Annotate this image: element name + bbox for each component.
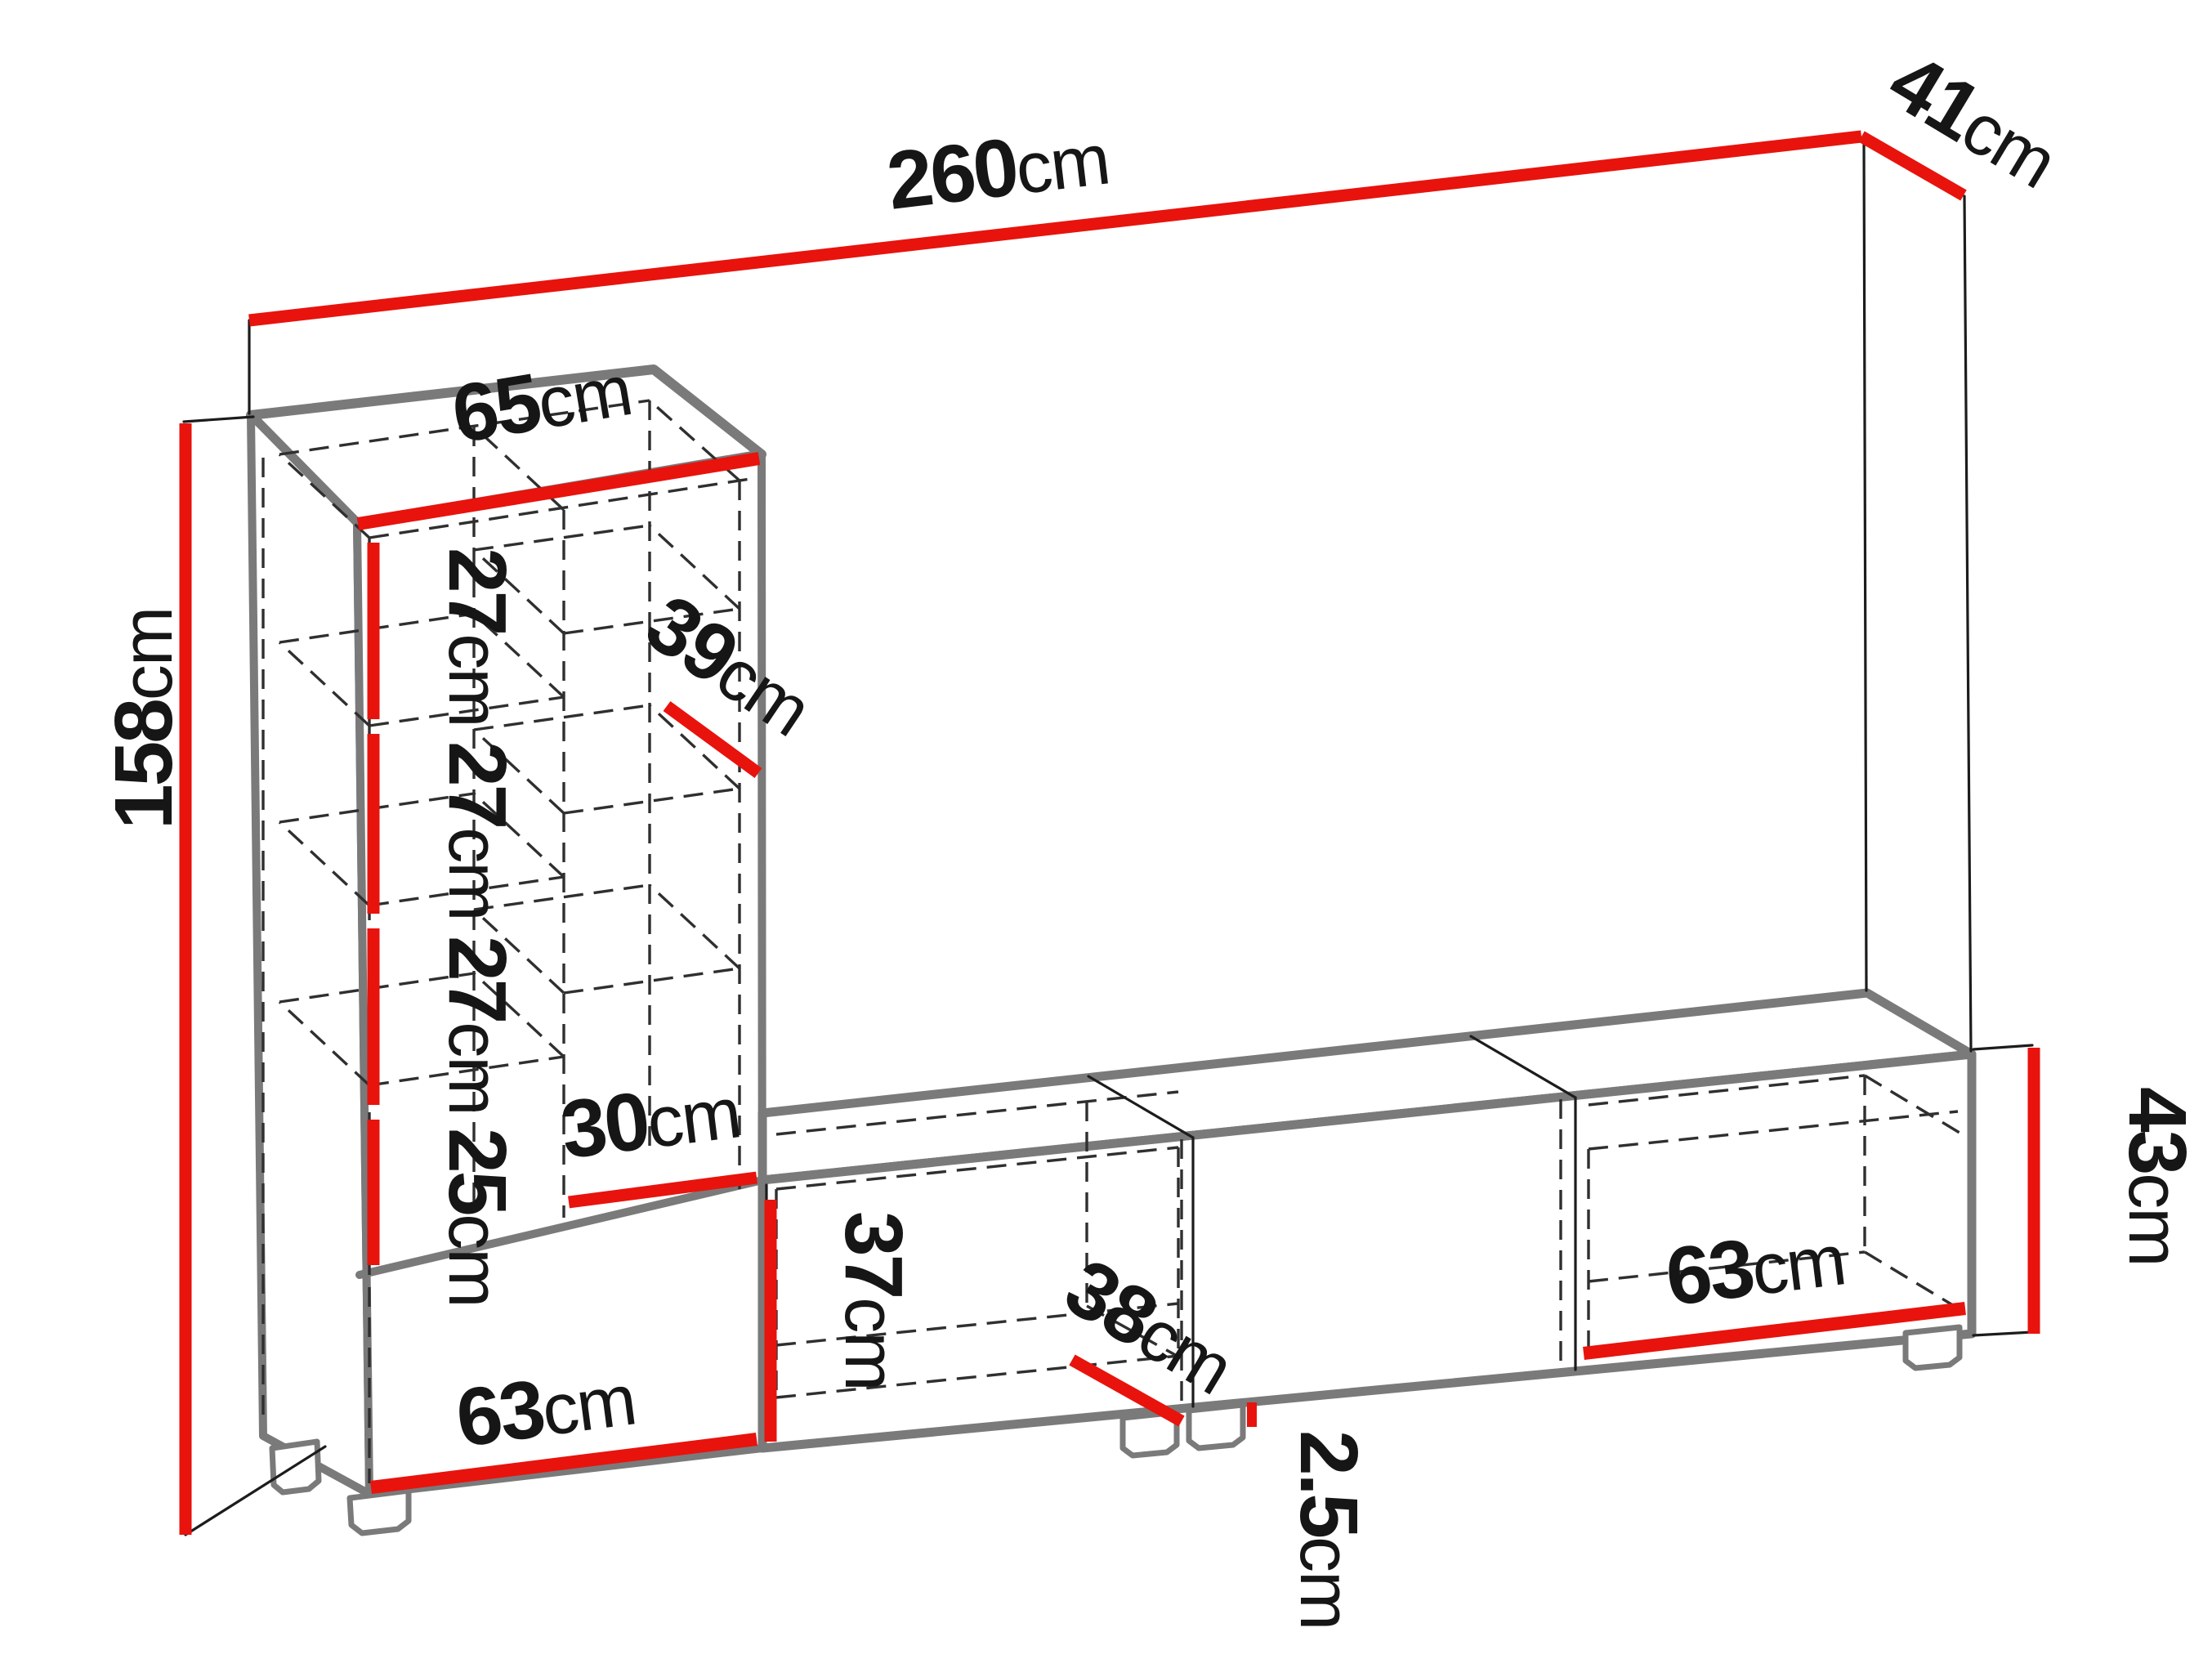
foot-bench-right: [1906, 1327, 1960, 1368]
foot-cabinet-front: [350, 1491, 409, 1533]
label-cabinet-height: 158cm: [98, 608, 190, 829]
label-bench-inner-height: 37cm: [828, 1211, 919, 1390]
label-shelf-gap-1: 27cm: [431, 548, 523, 727]
label-bench-height: 43cm: [2111, 1087, 2203, 1266]
foot-cabinet-side: [272, 1442, 319, 1492]
tall-cabinet: [251, 369, 762, 1494]
label-shelf-gap-2: 27cm: [431, 741, 523, 920]
tall-cabinet-left-side: [251, 415, 369, 1494]
foot-bench-middle: [1189, 1405, 1243, 1448]
label-shelf-gap-4: 25cm: [431, 1128, 523, 1307]
label-plinth-height: 2.5cm: [1283, 1430, 1374, 1629]
label-shelf-gap-3: 27cm: [431, 936, 523, 1115]
furniture-dimension-diagram: 260cm 41cm 65cm 158cm 27cm 27cm 27cm 25c…: [0, 0, 2212, 1659]
